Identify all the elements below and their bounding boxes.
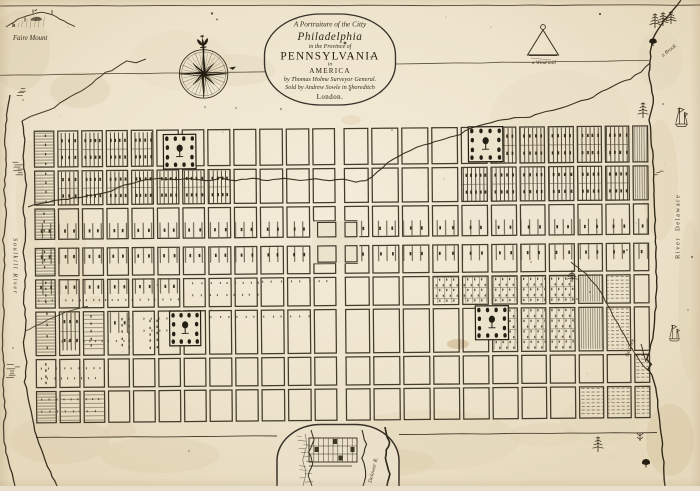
svg-text:River: River: [675, 237, 682, 259]
svg-text:Sold by Andrew Sowle in Shored: Sold by Andrew Sowle in Shoreditch: [285, 84, 375, 91]
svg-text:AMERICA: AMERICA: [309, 67, 351, 75]
svg-text:by Thomas Holme Surveyor Gener: by Thomas Holme Surveyor General.: [284, 76, 376, 83]
svg-text:Philadelphia: Philadelphia: [297, 31, 363, 43]
svg-text:Delaware: Delaware: [675, 194, 682, 231]
svg-text:London.: London.: [317, 94, 344, 101]
svg-text:Soulkill River: Soulkill River: [12, 238, 19, 295]
svg-text:Faire Mount: Faire Mount: [12, 35, 48, 42]
svg-text:A Portraiture of the Citty: A Portraiture of the Citty: [293, 21, 367, 29]
svg-text:in the Province of: in the Province of: [309, 43, 353, 50]
svg-text:a Wind mill: a Wind mill: [532, 60, 556, 66]
